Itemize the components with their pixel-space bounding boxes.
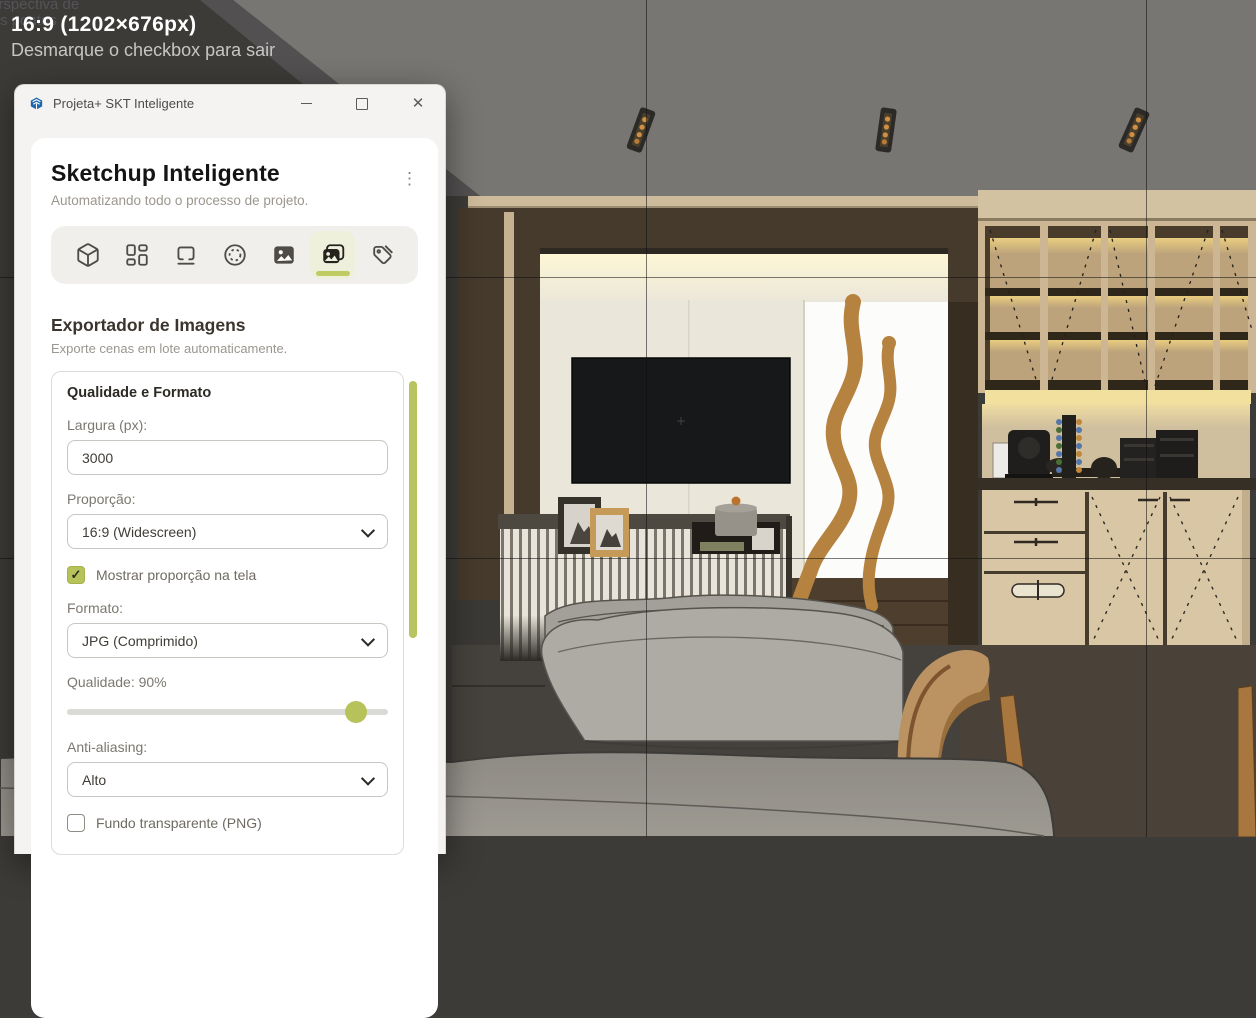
image-icon <box>271 242 297 268</box>
proportion-select[interactable]: 16:9 (Widescreen) <box>67 514 388 549</box>
section-plane-icon <box>173 242 199 268</box>
antialias-value: Alto <box>82 772 106 788</box>
section-plane-tool-button[interactable] <box>163 231 208 279</box>
minimize-button[interactable] <box>291 89 321 119</box>
transparent-bg-row[interactable]: Fundo transparente (PNG) <box>67 814 388 832</box>
slider-thumb[interactable] <box>345 701 367 723</box>
close-button[interactable]: ✕ <box>403 89 433 119</box>
layout-dashboard-icon <box>124 242 150 268</box>
proportion-label: Proporção: <box>67 491 388 507</box>
box-title: Qualidade e Formato <box>67 385 388 401</box>
proportion-value: 16:9 (Widescreen) <box>82 524 196 540</box>
aspect-overlay: 16:9 (1202×676px) Desmarque o checkbox p… <box>11 13 275 61</box>
window-title: Projeta+ SKT Inteligente <box>53 96 291 111</box>
format-select[interactable]: JPG (Comprimido) <box>67 623 388 658</box>
image-exporter-icon <box>320 242 346 268</box>
quality-slider[interactable] <box>67 701 388 723</box>
layout-dashboard-tool-button[interactable] <box>114 231 159 279</box>
transparent-bg-checkbox[interactable] <box>67 814 85 832</box>
image-exporter-tool-button[interactable] <box>310 231 355 279</box>
plugin-window: Projeta+ SKT Inteligente ✕ Sketchup Inte… <box>14 84 446 854</box>
tags-icon <box>369 242 395 268</box>
panel-title: Sketchup Inteligente <box>51 160 418 187</box>
panel-subtitle: Automatizando todo o processo de projeto… <box>51 193 418 208</box>
exporter-subtitle: Exporte cenas em lote automaticamente. <box>51 341 418 356</box>
minimize-icon <box>301 103 312 104</box>
exporter-title: Exportador de Imagens <box>51 315 418 336</box>
chevron-down-icon <box>361 523 375 537</box>
chevron-down-icon <box>361 632 375 646</box>
width-input[interactable] <box>67 440 388 475</box>
quality-label: Qualidade: 90% <box>67 674 388 690</box>
capsule-tower <box>1056 415 1082 478</box>
proportion-grid-vline-2 <box>1146 0 1147 837</box>
scrollbar-thumb[interactable] <box>409 381 417 638</box>
circle-dashed-icon <box>222 242 248 268</box>
maximize-icon <box>356 98 368 110</box>
show-proportion-checkbox[interactable]: ✓ <box>67 566 85 584</box>
quality-format-box: Qualidade e Formato Largura (px): Propor… <box>51 371 404 855</box>
chevron-down-icon <box>361 771 375 785</box>
base-cabinets <box>982 490 1250 665</box>
feature-toolbar <box>51 226 418 284</box>
coffee-machine-icon <box>1005 430 1053 479</box>
aspect-hint-label: Desmarque o checkbox para sair <box>11 40 275 61</box>
coffee-bar <box>978 404 1256 490</box>
upper-glass-cabinets <box>978 221 1256 404</box>
transparent-bg-label: Fundo transparente (PNG) <box>96 815 262 831</box>
cube-tool-button[interactable] <box>65 231 110 279</box>
show-proportion-row[interactable]: ✓ Mostrar proporção na tela <box>67 566 388 584</box>
front-sofa <box>542 608 903 749</box>
slider-track[interactable] <box>67 709 388 715</box>
format-label: Formato: <box>67 600 388 616</box>
image-tool-button[interactable] <box>261 231 306 279</box>
close-icon: ✕ <box>412 96 425 111</box>
window-titlebar[interactable]: Projeta+ SKT Inteligente ✕ <box>15 85 445 122</box>
antialias-label: Anti-aliasing: <box>67 739 388 755</box>
cube-icon <box>75 242 101 268</box>
antialias-select[interactable]: Alto <box>67 762 388 797</box>
kebab-menu-icon[interactable]: ⋮ <box>399 168 420 189</box>
circle-dashed-tool-button[interactable] <box>212 231 257 279</box>
tv-screen <box>572 358 790 483</box>
plugin-card: Sketchup Inteligente ⋮ Automatizando tod… <box>31 138 438 1018</box>
sketchup-logo-icon <box>28 95 45 112</box>
aspect-ratio-label: 16:9 (1202×676px) <box>11 13 275 37</box>
width-label: Largura (px): <box>67 417 388 433</box>
proportion-grid-vline-1 <box>646 0 647 837</box>
show-proportion-label: Mostrar proporção na tela <box>96 567 256 583</box>
tags-tool-button[interactable] <box>359 231 404 279</box>
maximize-button[interactable] <box>347 89 377 119</box>
format-value: JPG (Comprimido) <box>82 633 198 649</box>
